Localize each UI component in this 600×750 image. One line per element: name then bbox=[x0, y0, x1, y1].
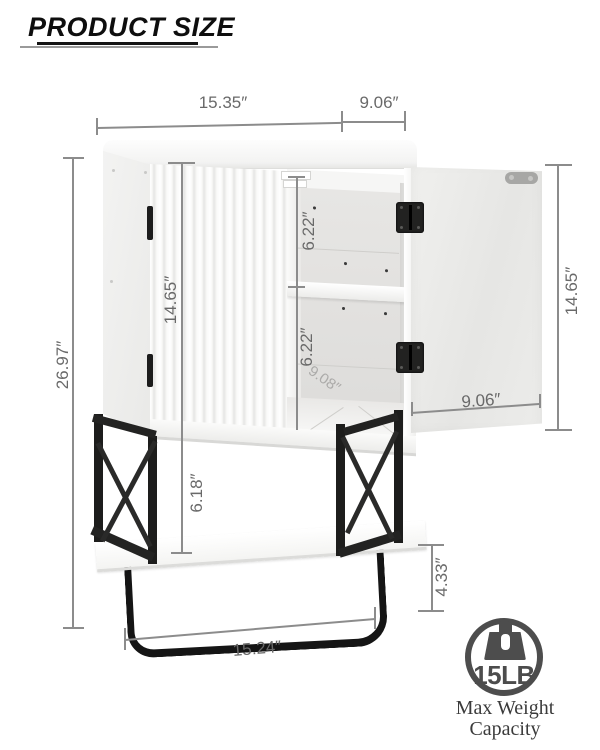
dim-tick bbox=[545, 164, 572, 166]
product-size-figure: PRODUCT SIZE 9.08″ bbox=[0, 0, 600, 750]
shelf-support-tab bbox=[283, 180, 307, 188]
dim-tick bbox=[96, 118, 98, 135]
cabinet-left-side-panel bbox=[103, 148, 153, 440]
dim-line-top-depth bbox=[342, 121, 406, 123]
dim-line-interior bbox=[296, 177, 298, 430]
dim-tick bbox=[171, 552, 192, 554]
dim-tick bbox=[374, 607, 376, 629]
dim-tick bbox=[63, 627, 84, 629]
left-door-hinge bbox=[147, 206, 153, 240]
dim-label-top-width: 15.35″ bbox=[163, 93, 283, 113]
dim-label-top-depth: 9.06″ bbox=[344, 93, 414, 113]
door-hinge-icon bbox=[396, 342, 424, 373]
dim-tick bbox=[545, 429, 572, 431]
title-underline-shadow bbox=[20, 46, 218, 48]
dim-line-left-door-height bbox=[181, 163, 183, 437]
dim-line-right-door-height bbox=[557, 165, 559, 430]
dim-line-top-width bbox=[97, 122, 342, 129]
dim-tick bbox=[288, 176, 305, 178]
handle-screw-dot bbox=[528, 176, 533, 181]
shelf-pin-hole bbox=[344, 262, 347, 265]
dim-label-overall-height: 26.97″ bbox=[53, 325, 73, 405]
frame-post bbox=[94, 414, 103, 542]
dim-label-left-door-height: 14.65″ bbox=[161, 260, 181, 340]
screw-dot bbox=[110, 280, 113, 283]
screw-dot bbox=[112, 169, 115, 172]
dim-label-open-shelf-height: 6.18″ bbox=[187, 453, 207, 533]
title-underline bbox=[37, 42, 198, 45]
dim-tick bbox=[63, 157, 84, 159]
door-hinge-icon bbox=[396, 202, 424, 233]
left-door-hinge bbox=[147, 354, 153, 387]
handle-screw-dot bbox=[509, 175, 514, 180]
weight-caption-line1: Max Weight bbox=[449, 698, 561, 719]
screw-dot bbox=[144, 171, 147, 174]
dim-label-lower-compartment: 6.22″ bbox=[297, 307, 317, 387]
shelf-pin-hole bbox=[384, 312, 387, 315]
weight-caption-line2: Capacity bbox=[449, 719, 561, 740]
dim-tick bbox=[539, 394, 541, 408]
dim-tick bbox=[124, 628, 126, 650]
dim-tick bbox=[411, 402, 413, 416]
dim-tick bbox=[288, 286, 305, 288]
dim-label-right-door-height: 14.65″ bbox=[562, 251, 582, 331]
shelf-pin-hole bbox=[342, 307, 345, 310]
shelf-pin-hole bbox=[385, 269, 388, 272]
dim-label-upper-compartment: 6.22″ bbox=[299, 191, 319, 271]
dim-line-open-shelf-height bbox=[181, 437, 183, 553]
weight-capacity-value: 15LB bbox=[465, 660, 543, 691]
dim-label-towel-drop: 4.33″ bbox=[432, 537, 452, 617]
dim-tick bbox=[168, 162, 195, 164]
page-title: PRODUCT SIZE bbox=[28, 12, 235, 43]
dim-tick bbox=[404, 111, 406, 131]
